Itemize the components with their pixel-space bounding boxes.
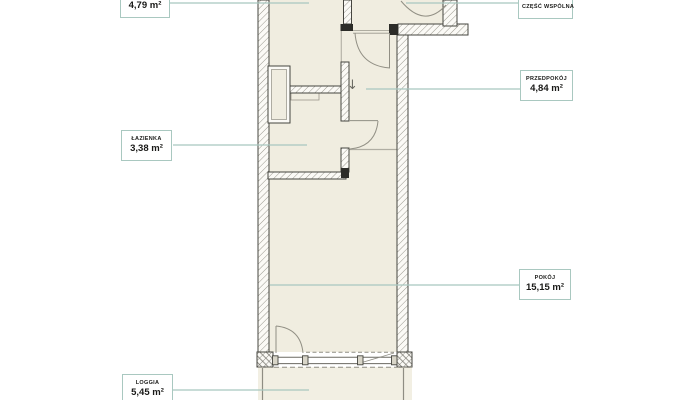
left-wall (258, 0, 269, 352)
window-mullion (392, 356, 398, 365)
label-czesc-wspolna: CZĘŚĆ WSPÓLNA (518, 0, 573, 19)
right-wall (397, 34, 408, 352)
label-loggia-area: 5,45 m² (126, 387, 169, 399)
label-czesc-wspolna-cut-row (522, 0, 569, 2)
label-czesc-wspolna-name: CZĘŚĆ WSPÓLNA (522, 4, 569, 10)
window-mullion (358, 356, 364, 365)
bottom-left-pillar (257, 352, 273, 367)
label-przedpokoj-name: PRZEDPOKÓJ (524, 76, 569, 82)
floor-plan-page: ↓ 4,79 m² CZĘŚĆ WSPÓLNA PRZEDPOKÓJ 4,84 … (0, 0, 692, 400)
window-mullion (303, 356, 309, 365)
shaft-inner (272, 70, 287, 120)
label-loggia: LOGGIA 5,45 m² (122, 374, 173, 400)
label-pokoj: POKÓJ 15,15 m² (519, 269, 571, 300)
bathroom-north-wall (286, 86, 341, 93)
bathroom-south-wall (268, 172, 346, 179)
common-area-right-wall (443, 0, 457, 26)
entrance-arrow-icon: ↓ (347, 78, 358, 93)
bathroom-door-post (341, 168, 349, 178)
bottom-right-pillar (397, 352, 412, 367)
label-przedpokoj: PRZEDPOKÓJ 4,84 m² (520, 70, 573, 101)
room-fills (258, 0, 443, 400)
label-room-479-area: 4,79 m² (124, 0, 166, 12)
kitchen-divider-wall (344, 0, 352, 24)
label-room-479: 4,79 m² (120, 0, 170, 18)
window-band-fill (273, 352, 397, 367)
label-pokoj-area: 15,15 m² (523, 282, 567, 294)
label-przedpokoj-area: 4,84 m² (524, 83, 569, 95)
label-pokoj-name: POKÓJ (523, 275, 567, 281)
label-lazienka-area: 3,38 m² (125, 143, 168, 155)
label-lazienka-name: ŁAZIENKA (125, 136, 168, 142)
label-lazienka: ŁAZIENKA 3,38 m² (121, 130, 172, 161)
label-loggia-name: LOGGIA (126, 380, 169, 386)
loggia-fill (258, 366, 412, 400)
duct-shaft (268, 66, 290, 123)
floor-plan-drawing: ↓ (0, 0, 692, 400)
window-mullion (273, 356, 279, 365)
divider-door-post (341, 24, 354, 31)
entrance-door-post (389, 24, 398, 35)
